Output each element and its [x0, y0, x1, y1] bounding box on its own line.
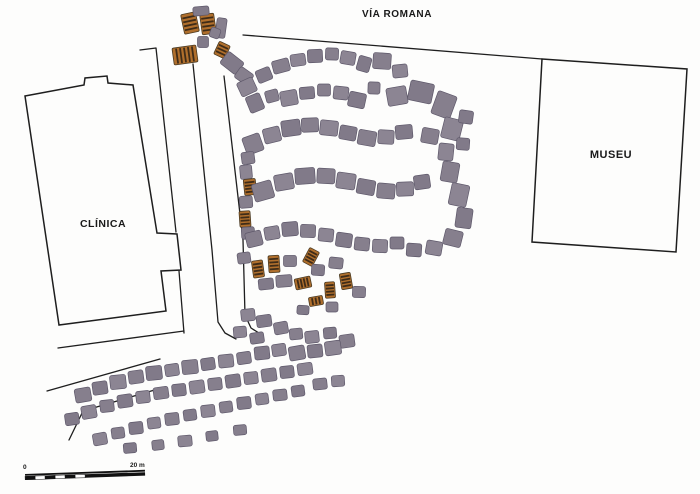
- ruin-block: [255, 393, 269, 406]
- ruin-block: [249, 332, 264, 345]
- ruin-block: [390, 237, 404, 249]
- ruin-block: [318, 84, 331, 96]
- ruin-block: [164, 412, 179, 425]
- ruin-block: [438, 143, 455, 161]
- ruin-block: [335, 232, 353, 248]
- ruin-block: [279, 365, 294, 378]
- ruin-block: [164, 363, 180, 377]
- ruin-block: [430, 90, 457, 119]
- ruin-block: [206, 430, 219, 441]
- ruin-block: [272, 389, 287, 401]
- ruin-block: [236, 351, 252, 365]
- ruin-block: [243, 371, 258, 384]
- ruin-block: [261, 368, 278, 383]
- ruin-block: [280, 119, 301, 137]
- ruin-block: [440, 161, 460, 184]
- ruin-block: [326, 302, 338, 312]
- ruin-block: [386, 85, 409, 106]
- ruin-block: [328, 257, 343, 269]
- ruin-block: [99, 399, 114, 412]
- ruin-block: [128, 370, 145, 385]
- ruin-block: [347, 91, 367, 109]
- ruin-block: [189, 380, 206, 395]
- ruin-block: [92, 432, 108, 446]
- ruin-block: [455, 207, 474, 229]
- scale-bar-zero-label: 0: [23, 464, 27, 471]
- ruin-block: [123, 442, 137, 453]
- ruin-block: [145, 365, 162, 381]
- ruin-block: [273, 172, 294, 191]
- excavated-feature-block: [172, 45, 198, 65]
- museu-label: MUSEU: [590, 149, 632, 161]
- ruin-block: [425, 240, 443, 257]
- ruin-block: [317, 168, 336, 184]
- excavated-feature-block: [251, 260, 264, 278]
- ruin-block: [284, 256, 297, 267]
- ruin-block: [294, 167, 315, 184]
- site-plan-page: VÍA ROMANA CLÍNICA MUSEU 0 20 m: [0, 0, 700, 494]
- ruin-block: [396, 182, 413, 197]
- ruin-block: [263, 225, 280, 240]
- excavated-feature-block: [339, 272, 353, 290]
- ruin-block: [448, 182, 470, 207]
- ruin-block: [80, 404, 97, 419]
- ruin-block: [301, 118, 318, 133]
- ruin-block: [198, 37, 209, 48]
- ruin-block: [420, 127, 439, 145]
- ruin-block: [331, 375, 345, 387]
- ruin-block: [153, 386, 170, 400]
- via-romana-label: VÍA ROMANA: [362, 9, 432, 20]
- ruin-block: [264, 89, 280, 104]
- ruin-block: [276, 274, 293, 287]
- ruin-block: [339, 50, 356, 65]
- ruin-block: [333, 86, 349, 100]
- ruin-block: [304, 330, 319, 343]
- ruin-block: [200, 404, 215, 417]
- ruin-block: [128, 421, 143, 434]
- ruin-block: [92, 381, 109, 396]
- ruin-block: [237, 252, 251, 265]
- ruin-block: [288, 345, 306, 362]
- ruin-block: [338, 125, 357, 142]
- ruin-block: [193, 6, 210, 16]
- ruin-block: [290, 53, 307, 67]
- ruin-block: [181, 359, 198, 375]
- scale-bar: [25, 470, 145, 480]
- excavated-feature-block: [239, 211, 251, 228]
- ruin-block: [312, 378, 327, 390]
- ruin-block: [245, 92, 265, 113]
- ruin-block: [64, 412, 80, 426]
- ruin-block: [147, 417, 161, 430]
- ruin-block: [372, 52, 391, 69]
- ruin-block: [311, 264, 325, 276]
- ruin-block: [273, 321, 289, 335]
- ruin-block: [233, 424, 247, 435]
- ruin-block: [297, 362, 314, 376]
- excavated-feature-block: [302, 247, 319, 266]
- ruin-block: [117, 394, 134, 409]
- ruin-block: [262, 126, 282, 145]
- ruin-block: [407, 80, 435, 105]
- street-west-edge: [193, 64, 236, 339]
- ruin-block: [442, 228, 463, 248]
- ruin-block: [378, 130, 395, 145]
- ruin-block: [325, 48, 338, 60]
- ruin-block: [318, 228, 334, 242]
- ruin-block: [300, 224, 315, 238]
- ruin-block: [299, 86, 315, 99]
- ruin-block: [183, 409, 197, 422]
- ruin-block: [279, 89, 298, 107]
- excavated-feature-block: [324, 282, 335, 299]
- ruin-block: [240, 308, 255, 321]
- ruin-block: [281, 221, 298, 236]
- excavated-feature-block: [268, 255, 280, 273]
- ruin-block: [236, 396, 251, 409]
- ruin-block: [218, 354, 234, 368]
- ruin-block: [356, 178, 376, 196]
- ruin-block: [111, 427, 125, 440]
- site-plan: [0, 0, 700, 494]
- ruin-block: [307, 344, 323, 358]
- excavated-feature-block: [308, 295, 323, 306]
- ruin-block: [207, 377, 222, 390]
- ruin-block: [74, 387, 92, 404]
- ruin-block: [456, 138, 470, 151]
- ruin-block: [368, 82, 380, 94]
- ruin-block: [357, 129, 377, 147]
- scale-bar-end-label: 20 m: [130, 462, 145, 469]
- ruin-block: [319, 120, 338, 137]
- ruin-block: [135, 390, 150, 403]
- ruin-block: [171, 383, 186, 396]
- ruin-block: [376, 183, 395, 200]
- ruin-block: [356, 55, 373, 73]
- excavated-feature-block: [294, 276, 312, 290]
- ruin-block: [241, 151, 256, 165]
- ruin-block: [324, 340, 342, 356]
- ruin-block: [297, 305, 310, 315]
- clinica-label: CLÍNICA: [80, 218, 126, 230]
- ruin-block: [255, 66, 274, 84]
- ruin-block: [152, 439, 165, 450]
- road-south-of-clinica: [58, 331, 184, 348]
- ruin-block: [335, 172, 356, 190]
- ruin-block: [291, 385, 305, 398]
- ruin-block: [392, 64, 408, 78]
- ruin-block: [256, 314, 273, 328]
- ruin-block: [323, 327, 337, 339]
- ruin-block: [239, 196, 253, 209]
- ruin-block: [458, 110, 474, 125]
- ruin-block: [233, 326, 247, 338]
- ruin-block: [258, 278, 274, 291]
- ruin-block: [413, 174, 431, 190]
- ruin-block: [395, 124, 413, 139]
- ruin-block: [352, 286, 365, 297]
- clinica-building-outline: [25, 76, 181, 325]
- ruin-block: [307, 49, 323, 63]
- ruin-block: [254, 346, 270, 360]
- ruin-block: [225, 374, 242, 389]
- ruin-block: [271, 343, 287, 357]
- ruin-block: [219, 401, 233, 414]
- ruin-block: [271, 58, 291, 75]
- ruin-block: [406, 243, 422, 257]
- clinica-fence-south: [179, 271, 184, 333]
- via-romana-road-line: [243, 35, 542, 59]
- ruin-block: [372, 239, 388, 253]
- ruin-block: [354, 237, 370, 251]
- ruin-block: [109, 374, 126, 390]
- ruin-block: [178, 435, 193, 447]
- ruin-block: [289, 328, 303, 340]
- ruin-block: [239, 165, 252, 180]
- ruin-block: [200, 357, 216, 371]
